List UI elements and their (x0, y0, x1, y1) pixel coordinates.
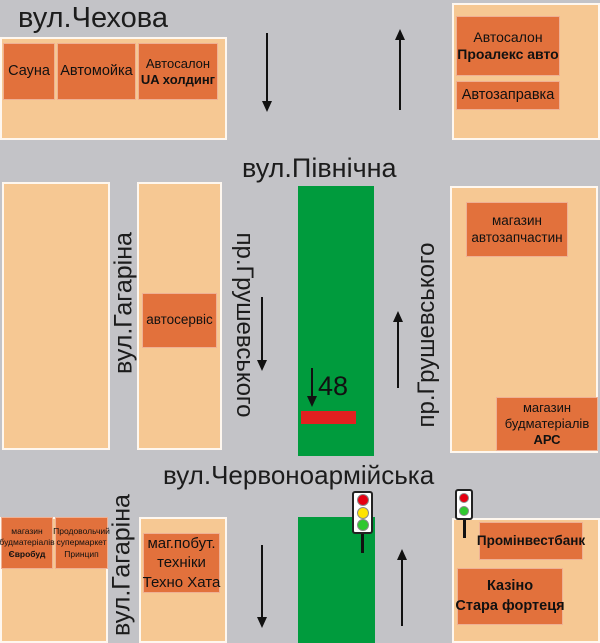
traffic-arrow-down-icon (266, 33, 268, 101)
billboard-direction-arrow-icon (311, 368, 313, 396)
traffic-arrow-down-icon (261, 297, 263, 360)
traffic-light-pole (463, 520, 466, 538)
red-lamp-icon (357, 494, 369, 506)
building-sauna: Сауна (3, 43, 55, 100)
traffic-arrow-up-icon (401, 560, 403, 626)
building-proaleks-avto: Автосалон Проалекс авто (456, 16, 560, 76)
yellow-lamp-icon (357, 507, 369, 519)
parcel-west-of-haharina (2, 182, 110, 450)
street-label-hrushevskoho-west: пр.Грушевського (230, 232, 258, 417)
building-prominvestbank: Промінвестбанк (479, 522, 583, 560)
building-car-wash: Автомойка (57, 43, 136, 100)
traffic-light-icon (352, 491, 373, 553)
building-gas-station: Автозаправка (456, 81, 560, 110)
traffic-light-icon (455, 489, 473, 538)
green-lamp-icon (357, 519, 369, 531)
traffic-arrow-up-icon (397, 322, 399, 388)
building-auto-parts-store: магазин автозапчастин (466, 202, 568, 257)
street-label-pivnichna: вул.Північна (242, 153, 397, 184)
building-kazino-stara-fortetsia: Казіно Стара фортеця (457, 568, 563, 625)
building-auto-service: автосервіс (142, 293, 217, 348)
building-tekhno-khata: маг.побут. техніки Техно Хата (143, 533, 220, 593)
building-ua-holding: Автосалон UA холдинг (138, 43, 218, 100)
street-label-haharina-mid: вул.Гагаріна (110, 232, 139, 374)
billboard-number: 48 (318, 371, 348, 402)
traffic-light-body (352, 491, 373, 534)
building-yevrobud-store: магазин будматеріалів Євробуд (1, 517, 53, 569)
billboard-marker (301, 411, 356, 424)
building-ars-store: магазин будматеріалів АРС (496, 397, 598, 451)
green-lamp-icon (459, 506, 469, 516)
street-label-chervonoarmiiska: вул.Червоноармійська (163, 460, 434, 491)
red-lamp-icon (459, 493, 469, 503)
traffic-arrow-down-icon (261, 545, 263, 617)
street-label-haharina-south: вул.Гагаріна (108, 494, 137, 636)
street-map: 48 Сауна Автомойка Автосалон UA холдинг … (0, 0, 600, 643)
street-label-hrushevskoho-east: пр.Грушевського (413, 242, 441, 427)
street-label-chekhova: вул.Чехова (18, 2, 168, 35)
traffic-light-pole (361, 534, 364, 553)
building-pryntsyp-supermarket: Продовольчий супермаркет Принцип (55, 517, 108, 569)
traffic-light-body (455, 489, 473, 520)
traffic-arrow-up-icon (399, 40, 401, 110)
